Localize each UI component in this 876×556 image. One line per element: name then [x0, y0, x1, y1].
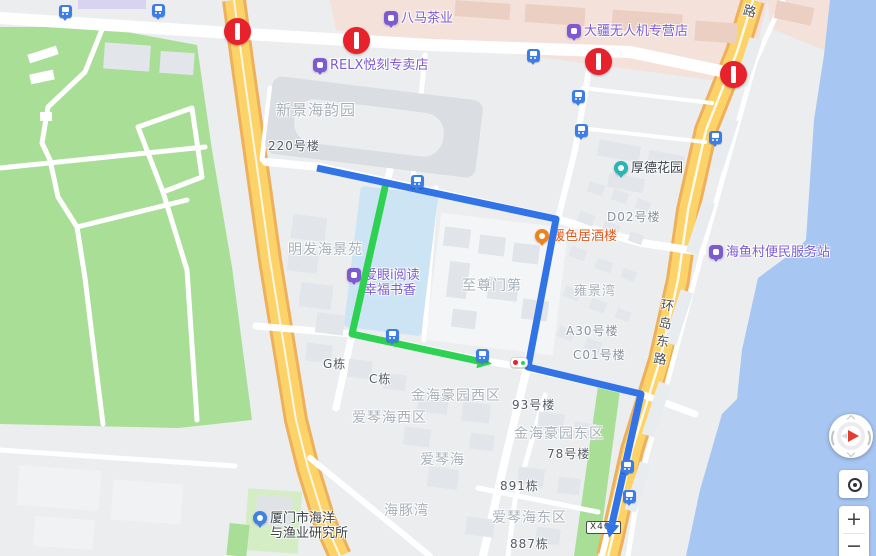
- rotate-right-icon[interactable]: [858, 428, 871, 448]
- locate-button[interactable]: [839, 470, 868, 498]
- no-entry-sign-icon: [343, 27, 370, 54]
- bus-stop-pointer-icon: [575, 102, 581, 106]
- bus-stop-icon[interactable]: [572, 90, 585, 103]
- bus-stop-pointer-icon: [626, 502, 632, 506]
- bus-stop-pointer-icon: [712, 143, 718, 147]
- zoom-out-button[interactable]: −: [839, 534, 869, 556]
- bus-stop-icon[interactable]: [575, 124, 588, 137]
- zoom-control[interactable]: + −: [839, 506, 869, 556]
- no-entry-sign-icon: [585, 48, 612, 75]
- bus-stop-pointer-icon: [578, 136, 584, 140]
- no-entry-sign-icon: [720, 61, 747, 88]
- tilt-down-icon[interactable]: [847, 449, 855, 457]
- bus-stop-pointer-icon: [62, 17, 68, 21]
- bus-stop-icon[interactable]: [623, 490, 636, 503]
- compass-control[interactable]: [829, 414, 873, 458]
- bus-stop-pointer-icon: [414, 187, 420, 191]
- bus-stop-pointer-icon: [479, 361, 485, 365]
- bus-stop-icon[interactable]: [386, 329, 399, 342]
- bus-stop-pointer-icon: [389, 341, 395, 345]
- bus-stop-icon[interactable]: [527, 49, 540, 62]
- map-canvas[interactable]: X401 八马茶业大疆无人机专营店RELX悦刻专卖店厚德花园暖色居酒楼爱眼i阅读…: [0, 0, 876, 556]
- bus-stop-icon[interactable]: [411, 175, 424, 188]
- bus-stop-icon[interactable]: [621, 460, 634, 473]
- locate-target-icon: [848, 478, 862, 492]
- no-entry-sign-icon: [224, 18, 251, 45]
- bus-stop-pointer-icon: [530, 61, 536, 65]
- traffic-light-icon: [510, 357, 528, 368]
- compass-needle-tail-icon: [841, 433, 847, 439]
- zoom-in-button[interactable]: +: [839, 506, 869, 533]
- bus-stop-pointer-icon: [624, 472, 630, 476]
- bus-stop-pointer-icon: [155, 16, 161, 20]
- bus-stop-icon[interactable]: [709, 131, 722, 144]
- bus-stop-icon[interactable]: [152, 4, 165, 17]
- bus-stop-icon[interactable]: [476, 349, 489, 362]
- compass-needle-icon: [848, 430, 859, 442]
- bus-stop-icon[interactable]: [59, 5, 72, 18]
